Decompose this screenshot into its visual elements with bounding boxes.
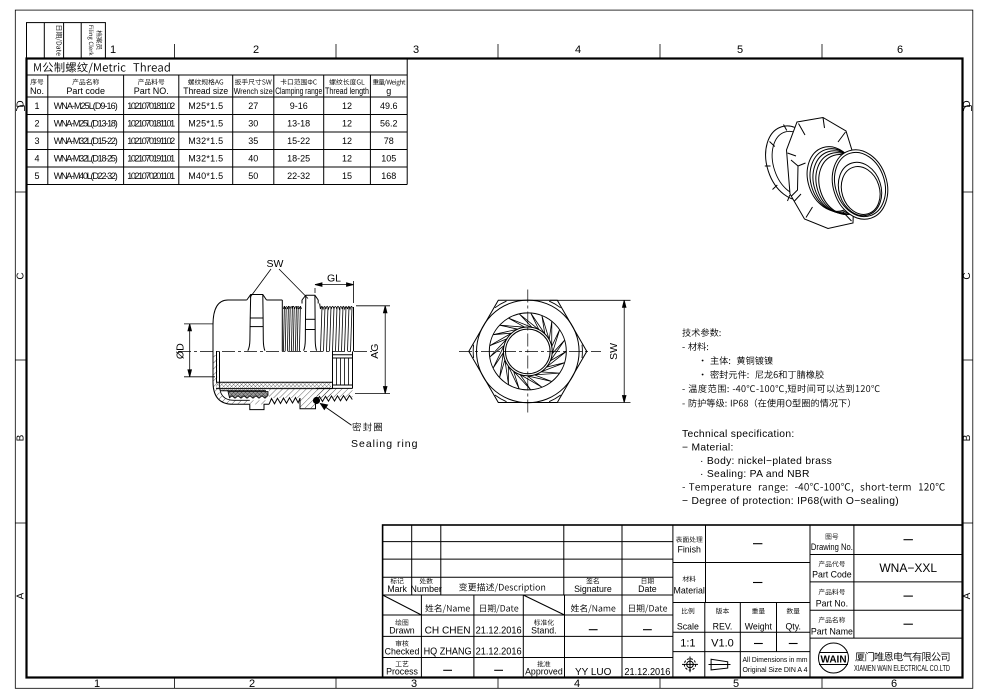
svg-text:C: C [16, 272, 27, 279]
svg-text:M25*1.5: M25*1.5 [188, 101, 223, 111]
svg-text:13-18: 13-18 [287, 119, 310, 129]
svg-text:1021070191101: 1021070191101 [127, 154, 175, 164]
svg-text:Weight: Weight [745, 622, 773, 632]
svg-text:Finish: Finish [677, 545, 701, 555]
svg-text:78: 78 [384, 136, 394, 146]
svg-text:Part Name: Part Name [811, 627, 853, 637]
svg-text:1021070181101: 1021070181101 [127, 119, 175, 129]
svg-text:M40*1.5: M40*1.5 [188, 171, 223, 181]
svg-text:WNA-M40L(D22-32): WNA-M40L(D22-32) [54, 171, 118, 181]
svg-text:WAIN: WAIN [820, 655, 846, 666]
svg-text:4: 4 [34, 154, 39, 164]
svg-text:21.12.2016: 21.12.2016 [476, 626, 522, 637]
svg-text:1: 1 [110, 44, 116, 56]
svg-text:WNA-M32L(D18-25): WNA-M32L(D18-25) [54, 154, 118, 164]
svg-text:g: g [386, 86, 391, 96]
svg-text:5: 5 [34, 171, 39, 181]
svg-text:SW: SW [608, 343, 620, 360]
svg-text:22-32: 22-32 [287, 171, 310, 181]
svg-text:All Dimensions in mm: All Dimensions in mm [743, 655, 808, 664]
svg-text:C: C [962, 272, 973, 279]
svg-text:18-25: 18-25 [287, 154, 310, 164]
svg-text:YY LUO: YY LUO [575, 667, 612, 678]
svg-text:AG: AG [369, 344, 381, 359]
svg-text:27: 27 [248, 101, 258, 111]
svg-text:12: 12 [342, 136, 352, 146]
svg-text:Qty.: Qty. [785, 622, 800, 632]
svg-text:15-22: 15-22 [287, 136, 310, 146]
svg-text:5: 5 [733, 678, 739, 690]
svg-text:56.2: 56.2 [380, 119, 398, 129]
svg-text:Thread length: Thread length [325, 86, 369, 96]
svg-text:50: 50 [248, 171, 258, 181]
svg-text:Clamping range: Clamping range [275, 86, 322, 96]
svg-text:2: 2 [253, 44, 259, 56]
svg-text:V1.0: V1.0 [711, 638, 734, 650]
svg-text:6: 6 [891, 678, 897, 690]
svg-text:2: 2 [34, 119, 39, 129]
svg-text:− Degree of protection: IP: − Degree of protection: IP68(with O−seal… [682, 496, 899, 507]
svg-text:SW: SW [267, 258, 284, 270]
svg-text:ØD: ØD [175, 343, 187, 359]
svg-text:Original Size DIN A 4: Original Size DIN A 4 [743, 665, 808, 674]
svg-text:CH CHEN: CH CHEN [425, 626, 471, 637]
svg-text:A: A [962, 592, 973, 599]
svg-text:WNA-M32L(D15-22): WNA-M32L(D15-22) [54, 136, 118, 146]
svg-text:40: 40 [248, 154, 258, 164]
svg-text:15: 15 [342, 171, 352, 181]
svg-text:GL: GL [327, 273, 341, 285]
svg-text:M25*1.5: M25*1.5 [188, 119, 223, 129]
svg-text:Approved: Approved [525, 667, 563, 677]
svg-text:Drawing No.: Drawing No. [811, 542, 853, 552]
svg-text:1:1: 1:1 [680, 638, 695, 650]
svg-text:9-16: 9-16 [290, 101, 308, 111]
svg-text:1021070191102: 1021070191102 [127, 136, 175, 146]
svg-text:REV.: REV. [713, 622, 733, 632]
svg-text:Wrench size: Wrench size [234, 86, 273, 96]
svg-text:Checked: Checked [385, 647, 420, 657]
svg-text:1: 1 [34, 101, 39, 111]
svg-text:Technical specification:: Technical specification: [682, 429, 795, 440]
svg-text:Mark: Mark [387, 584, 407, 594]
svg-text:Part No.: Part No. [816, 599, 848, 609]
svg-text:Drawn: Drawn [389, 626, 415, 636]
svg-text:3: 3 [413, 44, 419, 56]
svg-text:No.: No. [30, 86, 44, 96]
svg-text:1021070201101: 1021070201101 [127, 171, 175, 181]
svg-text:M32*1.5: M32*1.5 [188, 154, 223, 164]
svg-text:49.6: 49.6 [380, 101, 398, 111]
svg-text:B: B [962, 434, 973, 441]
svg-text:1: 1 [94, 678, 100, 690]
svg-text:2: 2 [249, 678, 255, 690]
svg-text:WNA-M25L(D9-16): WNA-M25L(D9-16) [54, 101, 118, 111]
svg-text:M32*1.5: M32*1.5 [188, 136, 223, 146]
svg-text:Signature: Signature [574, 584, 612, 594]
svg-text:Stand.: Stand. [531, 626, 556, 636]
svg-text:4: 4 [574, 678, 580, 690]
svg-text:· Body: nickel−plated bras: · Body: nickel−plated brass [700, 456, 832, 467]
svg-text:Date: Date [638, 584, 657, 594]
svg-text:6: 6 [897, 44, 903, 56]
svg-text:Thread size: Thread size [183, 86, 228, 96]
svg-text:21.12.2016: 21.12.2016 [476, 647, 522, 658]
svg-text:Scale: Scale [677, 622, 699, 632]
svg-text:Part Code: Part Code [812, 570, 852, 580]
svg-text:Part code: Part code [66, 86, 105, 96]
svg-text:Process: Process [386, 667, 418, 677]
svg-text:21.12.2016: 21.12.2016 [624, 667, 670, 678]
svg-text:HQ ZHANG: HQ ZHANG [424, 647, 472, 658]
svg-text:Material: Material [674, 586, 705, 596]
svg-text:12: 12 [342, 101, 352, 111]
svg-text:Number: Number [411, 584, 442, 594]
svg-text:30: 30 [248, 119, 258, 129]
svg-text:Part NO.: Part NO. [134, 86, 169, 96]
svg-text:XIAMEN WAIN ELECTRICAL CO.LTD: XIAMEN WAIN ELECTRICAL CO.LTD [854, 663, 950, 673]
svg-text:105: 105 [381, 154, 396, 164]
svg-text:WNA−XXL: WNA−XXL [879, 561, 937, 575]
svg-text:WNA-M25L(D13-18): WNA-M25L(D13-18) [54, 119, 118, 129]
svg-text:1021070181102: 1021070181102 [127, 101, 175, 111]
svg-text:4: 4 [575, 44, 581, 56]
svg-text:12: 12 [342, 154, 352, 164]
svg-text:5: 5 [737, 44, 743, 56]
svg-text:− Material:: − Material: [682, 443, 734, 454]
svg-text:12: 12 [342, 119, 352, 129]
svg-text:3: 3 [34, 136, 39, 146]
svg-text:3: 3 [411, 678, 417, 690]
svg-text:A: A [16, 592, 27, 599]
svg-text:Sealing ring: Sealing ring [351, 438, 418, 450]
svg-text:· Sealing: PA and NBR: · Sealing: PA and NBR [700, 469, 810, 480]
svg-text:B: B [16, 434, 27, 441]
svg-text:35: 35 [248, 136, 258, 146]
svg-text:168: 168 [381, 171, 396, 181]
